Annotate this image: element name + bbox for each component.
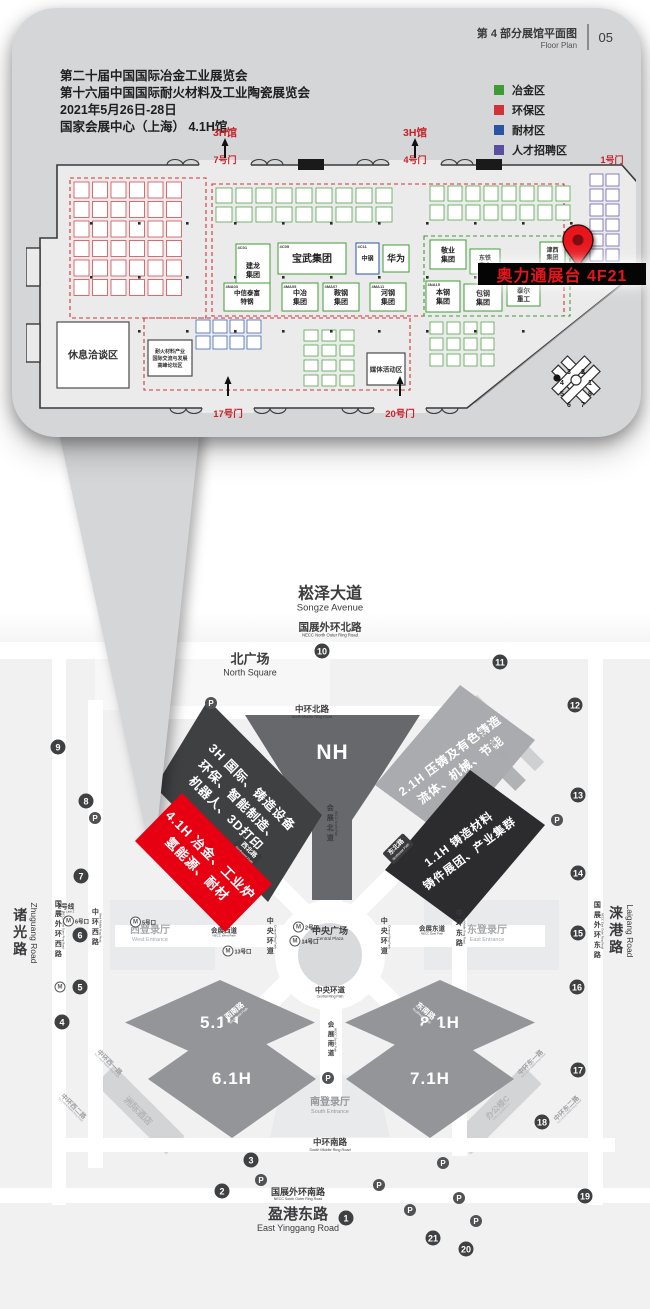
gate-arc: [251, 160, 283, 166]
booth-cell: [464, 354, 477, 366]
road-label: 东登录厅East Entrance: [467, 925, 507, 943]
booth-cell: [304, 345, 318, 356]
parking-icon: P: [404, 1204, 416, 1216]
booth-cell: [276, 207, 292, 222]
column-dot: [522, 222, 525, 225]
booth-label: 集团: [440, 254, 455, 263]
booth-cell: [316, 207, 332, 222]
column-dot: [234, 222, 237, 225]
booth-cell: [606, 174, 619, 186]
booth-cell: [430, 186, 444, 201]
booth-cell: [340, 360, 354, 371]
gate-label: 17号门: [213, 408, 243, 418]
legend-item: 冶金区: [494, 80, 567, 100]
booth-marker-label: 奥力通展台 4F21: [478, 263, 646, 285]
booth-cell: [376, 207, 392, 222]
parking-icon: P: [255, 1174, 267, 1186]
column-dot: [186, 276, 189, 279]
metro-icon: M: [289, 936, 300, 947]
booth-cell: [148, 260, 163, 276]
booth-label: 特钢: [241, 296, 255, 305]
booth-cell: [447, 354, 460, 366]
map-gate-6: 6: [73, 928, 88, 943]
booth-cell: [111, 202, 126, 218]
booth-cell: [247, 320, 261, 333]
booth-cell: [276, 188, 292, 203]
booth-id: 4MA11: [372, 284, 385, 289]
booth-id: 4C01: [238, 245, 248, 250]
legend-swatch: [494, 85, 504, 95]
booth-cell: [322, 375, 336, 386]
booth-cell: [340, 345, 354, 356]
metro-exit: M6号口: [63, 916, 89, 927]
header-divider: [587, 24, 589, 50]
road-label: 西登录厅West Entrance: [130, 925, 170, 943]
road-label: 崧泽大道Songze Avenue: [297, 585, 363, 614]
booth-cell: [520, 186, 534, 201]
road-label: 中环东二路No.2 East Middle Ring Road: [553, 1095, 584, 1126]
booth-id: 4MA05: [284, 284, 298, 289]
road-label: 涞港路Laigang Road: [608, 905, 634, 958]
booth-label: 泰尔: [516, 286, 531, 295]
booth-cell: [111, 182, 126, 198]
booth-cell: [590, 189, 603, 201]
arrow-up-icon: [222, 138, 229, 146]
booth-cell: [167, 260, 182, 276]
booth-cell: [466, 205, 480, 220]
road-label: 中环西路West Middle Ring Road: [90, 908, 101, 948]
booth-label: 东铁: [479, 254, 491, 262]
booth-cell: [556, 186, 570, 201]
booth-label: 集团: [333, 297, 348, 306]
exhibition-title-line: 2021年5月26日-28日: [60, 102, 310, 119]
booth-cell: [93, 182, 108, 198]
header-title: 第 4 部分展馆平面图: [477, 25, 577, 41]
booth-label: 集团: [245, 270, 260, 279]
booth-label: 华为: [387, 253, 405, 264]
map-gate-16: 16: [570, 980, 585, 995]
booth-cell: [590, 219, 603, 231]
booth-cell: [336, 207, 352, 222]
booth-cell: [481, 338, 494, 350]
booth-cell: [167, 241, 182, 257]
parking-icon: P: [322, 1072, 334, 1084]
booth-id: 4NA15: [428, 282, 441, 287]
parking-icon: P: [470, 1215, 482, 1227]
booth-cell: [304, 360, 318, 371]
map-gate-18: 18: [535, 1115, 550, 1130]
booth-cell: [322, 345, 336, 356]
booth-cell: [167, 182, 182, 198]
booth-cell: [448, 205, 462, 220]
booth-cell: [93, 260, 108, 276]
booth-cell: [448, 186, 462, 201]
booth-cell: [230, 320, 244, 333]
gate-arc: [342, 408, 374, 414]
booth-label: 鞍钢: [334, 288, 348, 297]
compass-number: 7: [581, 402, 585, 409]
page-header: 第 4 部分展馆平面图 Floor Plan 05: [477, 24, 613, 50]
map-gate-20: 20: [459, 1242, 474, 1257]
booth-cell: [74, 202, 89, 218]
page-number: 05: [599, 30, 613, 45]
booth-cell: [322, 330, 336, 341]
metro-exit: M2号口: [293, 922, 319, 933]
booth-cell: [376, 188, 392, 203]
road-label: 诸光路Zhuguang Road: [12, 903, 38, 964]
booth-cell: [430, 354, 443, 366]
booth-cell: [236, 188, 252, 203]
column-dot: [378, 330, 381, 333]
booth-cell: [74, 241, 89, 257]
header-subtitle: Floor Plan: [477, 41, 577, 50]
booth-cell: [356, 207, 372, 222]
compass-number: 2: [581, 369, 585, 376]
road-label: 国展外环北路NECC North Outer Ring Road: [299, 622, 362, 639]
booth-cell: [538, 186, 552, 201]
parking-icon: P: [373, 1179, 385, 1191]
map-gate-17: 17: [571, 1063, 586, 1078]
booth-cell: [93, 202, 108, 218]
booth-cell: [430, 338, 443, 350]
gate-arc: [357, 160, 389, 166]
booth-cell: [296, 207, 312, 222]
booth-cell: [502, 186, 516, 201]
map-gate-15: 15: [571, 926, 586, 941]
exhibition-title-line: 第二十届中国国际冶金工业展览会: [60, 68, 310, 85]
callout-tail: [40, 420, 210, 850]
column-dot: [186, 330, 189, 333]
booth-label: 重工: [517, 294, 531, 303]
booth-cell: [430, 322, 443, 334]
road-label: 会展东道NECC East Path: [419, 926, 445, 937]
booth-cell: [336, 188, 352, 203]
column-dot: [282, 330, 285, 333]
metro-icon: M: [130, 917, 141, 928]
map-gate-21: 21: [426, 1231, 441, 1246]
booth-cell: [340, 375, 354, 386]
booth-cell: [464, 338, 477, 350]
gate-arc: [441, 160, 473, 166]
booth-cell: [484, 205, 498, 220]
booth-label: 中钢: [361, 255, 373, 263]
gate-label: 1号门: [600, 154, 623, 165]
booth-cell: [111, 221, 126, 237]
booth-cell: [130, 202, 145, 218]
booth-cell: [322, 360, 336, 371]
booth-cell: [304, 330, 318, 341]
booth-cell: [606, 204, 619, 216]
road-label: 中环北路North Middle Ring Road: [292, 705, 333, 719]
column-dot: [330, 276, 333, 279]
booth-cell: [213, 320, 227, 333]
column-dot: [138, 276, 141, 279]
booth-cell: [74, 221, 89, 237]
booth-cell: [148, 182, 163, 198]
road-label: 北广场North Square: [223, 652, 277, 677]
booth-cell: [606, 249, 619, 261]
hall-ref-label: 3H馆: [213, 126, 237, 139]
column-dot: [570, 222, 573, 225]
parking-icon: P: [453, 1192, 465, 1204]
booth-label: 本钢: [435, 288, 450, 297]
elevator-block: [298, 159, 324, 170]
map-gate-1: 1: [339, 1211, 354, 1226]
booth-cell: [213, 336, 227, 349]
gate-arc: [254, 408, 286, 414]
booth-cell: [304, 375, 318, 386]
booth-label: 敬业: [440, 246, 455, 255]
booth-cell: [196, 336, 210, 349]
metro-exit: M13号口: [222, 946, 251, 957]
booth-label: 中信泰富: [234, 288, 261, 297]
road-label: 中央环道Central Ring Path: [379, 917, 390, 957]
legend-label: 环保区: [512, 102, 545, 118]
column-dot: [522, 330, 525, 333]
booth-cell: [590, 249, 603, 261]
metro-icon: M: [222, 946, 233, 957]
booth-cell: [130, 260, 145, 276]
elevator-block: [476, 159, 502, 170]
booth-cell: [111, 280, 126, 296]
booth-cell: [111, 260, 126, 276]
area-label: 耐火材料产业: [155, 348, 185, 355]
road-label: 中央环道Central Ring Path: [315, 987, 345, 1000]
booth-label: 包钢: [476, 289, 490, 298]
hall-ref-label: 3H馆: [403, 126, 427, 139]
booth-cell: [538, 205, 552, 220]
booth-id: 4MA07: [325, 284, 339, 289]
booth-label: 集团: [380, 297, 395, 306]
column-dot: [426, 330, 429, 333]
column-dot: [426, 276, 429, 279]
floorplan-callout: 第 4 部分展馆平面图 Floor Plan 05 第二十届中国国际冶金工业展览…: [12, 8, 641, 437]
gate-arc: [167, 160, 199, 166]
compass-number: 1: [588, 380, 592, 387]
road-label: 国展外环东路NECC East Outer Ring Road: [592, 901, 603, 961]
booth-cell: [167, 221, 182, 237]
booth-cell: [93, 221, 108, 237]
gate-label: 20号门: [385, 408, 415, 418]
booth-cell: [606, 234, 619, 246]
column-dot: [330, 330, 333, 333]
booth-cell: [606, 189, 619, 201]
area-label: 休息洽谈区: [67, 349, 118, 362]
booth-cell: [481, 322, 494, 334]
booth-cell: [447, 322, 460, 334]
metro-exit: M5号口: [130, 917, 156, 928]
booth-cell: [93, 280, 108, 296]
compass-number: 8: [588, 391, 592, 398]
booth-cell: [296, 188, 312, 203]
booth-cell: [167, 202, 182, 218]
compass-number: 3: [567, 369, 571, 376]
road-label: 中央环道Central Ring Path: [265, 917, 276, 957]
column-dot: [90, 222, 93, 225]
booth-label: 集团: [475, 297, 490, 306]
parking-icon: P: [551, 814, 563, 826]
column-dot: [282, 276, 285, 279]
area-label: 高峰论坛区: [157, 362, 182, 369]
map-gate-2: 2: [215, 1184, 230, 1199]
booth-label: 集团: [292, 297, 307, 306]
booth-cell: [466, 186, 480, 201]
map-gate-19: 19: [578, 1189, 593, 1204]
road-label: 2号线Metro Line 2: [58, 904, 75, 915]
booth-cell: [481, 354, 494, 366]
booth-cell: [484, 186, 498, 201]
booth-label: 津西: [546, 246, 558, 254]
column-dot: [378, 276, 381, 279]
map-gate-11: 11: [493, 655, 508, 670]
map-gate-12: 12: [568, 698, 583, 713]
booth-label: 集团: [435, 296, 450, 305]
booth-cell: [148, 280, 163, 296]
gate-arc: [170, 408, 202, 414]
parking-icon: P: [437, 1157, 449, 1169]
stairwell: [26, 248, 40, 286]
booth-cell: [520, 205, 534, 220]
booth-cell: [130, 182, 145, 198]
booth-cell: [93, 241, 108, 257]
booth-cell: [130, 280, 145, 296]
booth-cell: [236, 207, 252, 222]
gate-arc: [426, 408, 458, 414]
booth-cell: [74, 280, 89, 296]
booth-id: 4C11: [358, 244, 368, 249]
booth-cell: [556, 205, 570, 220]
column-dot: [474, 222, 477, 225]
booth-label: 建龙: [246, 261, 260, 270]
column-dot: [186, 222, 189, 225]
map-gate-4: 4: [55, 1015, 70, 1030]
map-gate-10: 10: [315, 644, 330, 659]
booth-cell: [148, 202, 163, 218]
booth-label: 集团: [545, 253, 558, 261]
road-label: 中环南路South Middle Ring Road: [309, 1138, 350, 1152]
road-label: 会展北道NECC North Path: [325, 804, 337, 844]
booth-label: 中冶: [293, 288, 307, 297]
booth-cell: [590, 174, 603, 186]
area-label: 国际交流与发展: [152, 355, 187, 362]
column-dot: [282, 222, 285, 225]
page: NH 3H 国际、铸造设备环保、智能制造、机器人、3D打印 2.1H 压铸及有色…: [0, 0, 650, 1309]
column-dot: [426, 222, 429, 225]
column-dot: [234, 330, 237, 333]
metro-exit: M14号口: [289, 936, 318, 947]
booth-cell: [256, 207, 272, 222]
booth-cell: [247, 336, 261, 349]
booth-cell: [340, 330, 354, 341]
column-dot: [90, 276, 93, 279]
booth-cell: [447, 338, 460, 350]
metro-exit: M: [55, 982, 66, 993]
compass-number: 4: [560, 380, 564, 387]
booth-cell: [606, 219, 619, 231]
booth-cell: [502, 205, 516, 220]
booth-cell: [430, 205, 444, 220]
legend-swatch: [494, 105, 504, 115]
booth-cell: [74, 182, 89, 198]
arrow-up-icon: [412, 138, 419, 146]
legend-item: 环保区: [494, 100, 567, 120]
booth-cell: [316, 188, 332, 203]
map-gate-5: 5: [73, 980, 88, 995]
metro-icon: M: [55, 982, 66, 993]
road-label: 中环东路East Middle Ring Road: [454, 909, 465, 949]
booth-cell: [130, 241, 145, 257]
booth-cell: [216, 188, 232, 203]
booth-cell: [148, 241, 163, 257]
legend-label: 冶金区: [512, 82, 545, 98]
booth-label: 河钢: [381, 288, 395, 297]
metro-icon: M: [63, 916, 74, 927]
road-label: 盈港东路East Yinggang Road: [257, 1206, 339, 1234]
compass-number: 6: [567, 402, 571, 409]
booth-cell: [196, 320, 210, 333]
booth-cell: [148, 221, 163, 237]
compass-number: 5: [560, 391, 564, 398]
column-dot: [138, 222, 141, 225]
column-dot: [378, 222, 381, 225]
column-dot: [330, 222, 333, 225]
booth-label: 宝武集团: [292, 252, 332, 265]
booth-cell: [130, 221, 145, 237]
booth-cell: [256, 188, 272, 203]
booth-cell: [74, 260, 89, 276]
map-gate-14: 14: [571, 866, 586, 881]
column-dot: [474, 276, 477, 279]
road-label: 南登录厅South Entrance: [310, 1097, 350, 1115]
booth-cell: [167, 280, 182, 296]
exhibition-title-line: 第十六届中国国际耐火材料及工业陶瓷展览会: [60, 85, 310, 102]
column-dot: [474, 330, 477, 333]
metro-icon: M: [293, 922, 304, 933]
booth-cell: [216, 207, 232, 222]
booth-cell: [590, 204, 603, 216]
booth-id: 4C05: [280, 244, 290, 249]
column-dot: [138, 330, 141, 333]
stairwell: [26, 324, 40, 362]
booth-cell: [230, 336, 244, 349]
booth-cell: [111, 241, 126, 257]
map-gate-13: 13: [571, 788, 586, 803]
map-gate-7: 7: [74, 869, 89, 884]
area-label: 媒体活动区: [370, 364, 403, 373]
booth-id: 4NA03: [226, 284, 239, 289]
road-label: 国展外环南路NECC South Outer Ring Road: [271, 1187, 325, 1201]
map-gate-3: 3: [244, 1153, 259, 1168]
booth-cell: [356, 188, 372, 203]
road-label: 会展南道NECC South Path: [326, 1021, 337, 1059]
